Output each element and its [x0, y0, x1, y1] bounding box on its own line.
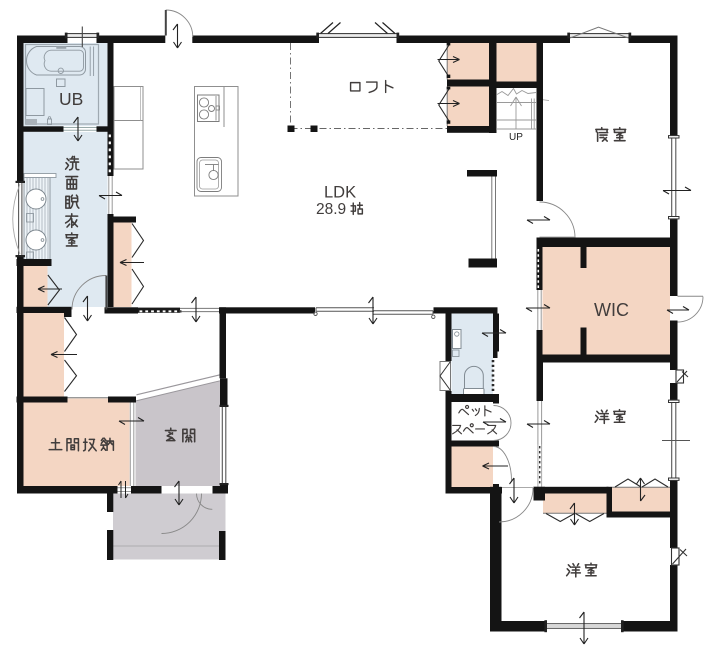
svg-text:28.9: 28.9	[316, 201, 346, 218]
svg-text:UB: UB	[59, 89, 83, 109]
svg-text:UP: UP	[509, 132, 523, 143]
svg-text:LDK: LDK	[324, 184, 356, 202]
svg-text:WIC: WIC	[594, 300, 629, 320]
